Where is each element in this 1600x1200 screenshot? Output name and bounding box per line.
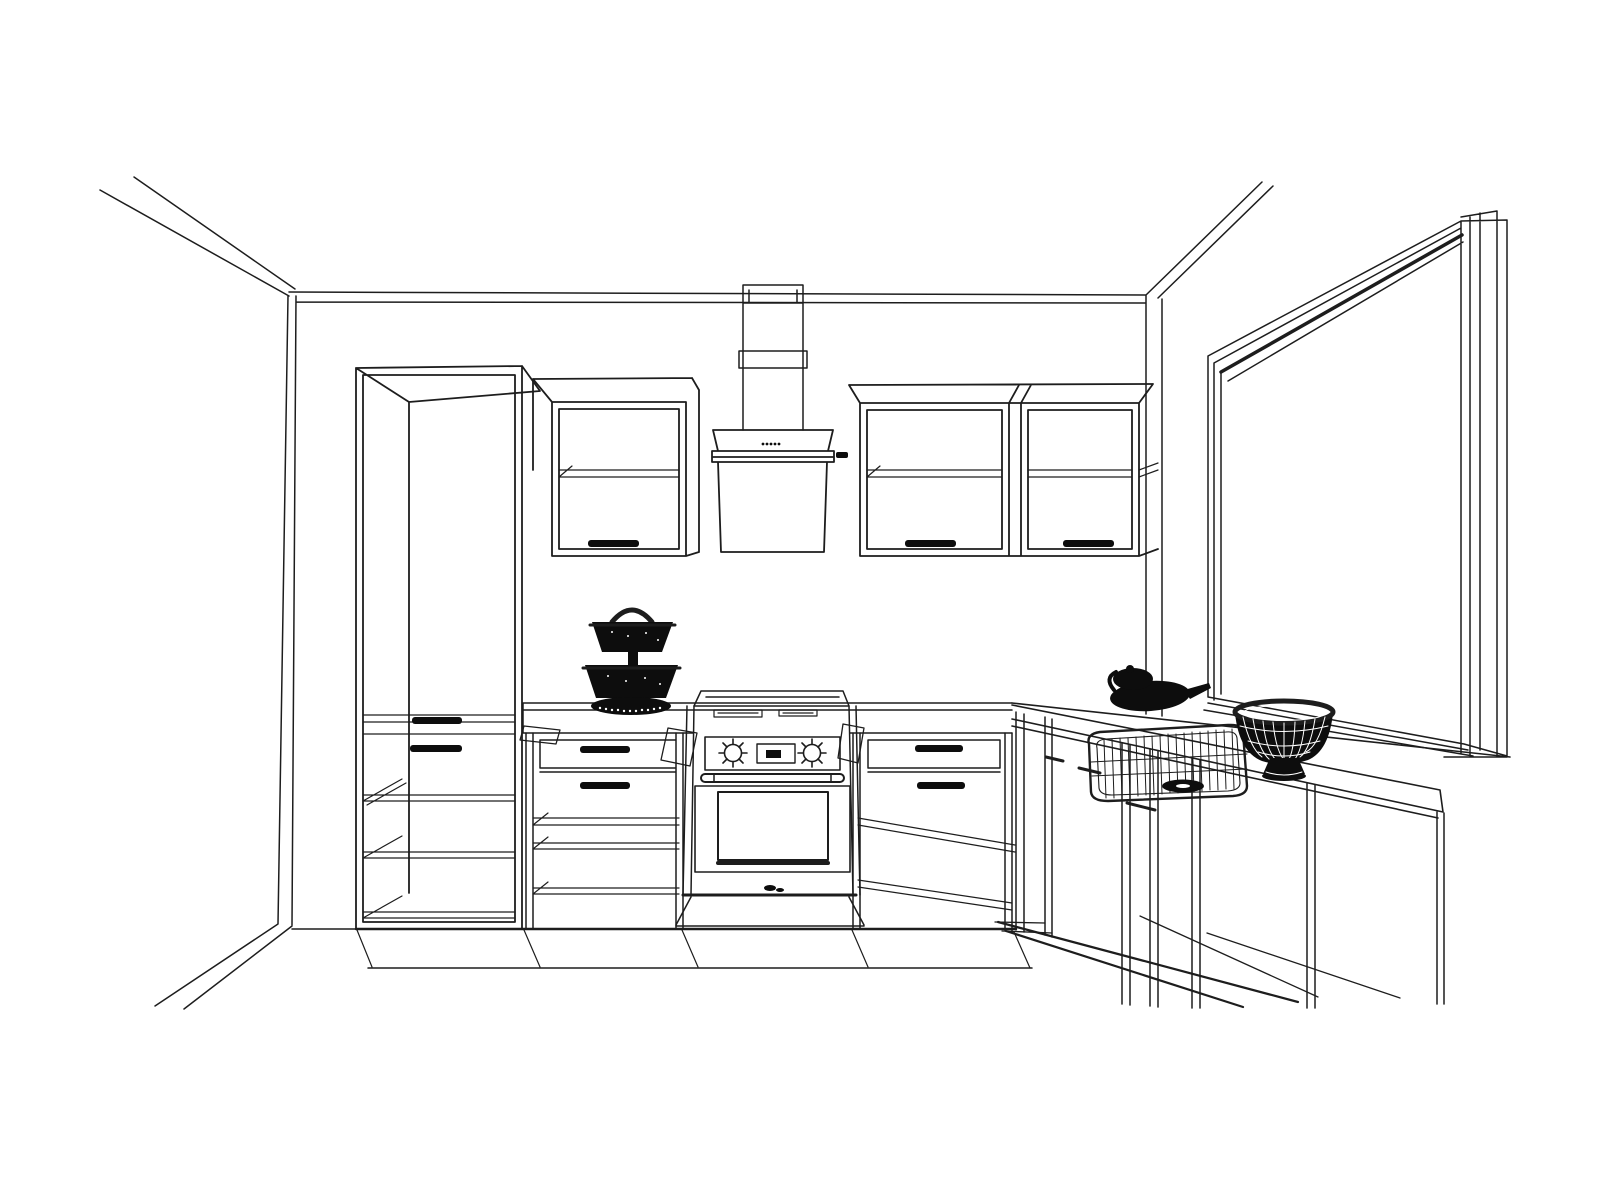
hood-dot-4	[774, 443, 777, 446]
perforation-dot	[641, 709, 643, 711]
wall-cabinet-right-handle-2	[1063, 540, 1114, 547]
base-left-handle-1	[580, 746, 630, 753]
highlight-dot	[627, 635, 629, 637]
perforation-dot	[623, 710, 625, 712]
highlight-dot	[607, 675, 609, 677]
perforation-dot	[599, 707, 601, 709]
perforation-dot	[629, 710, 631, 712]
hood-dot-2	[766, 443, 769, 446]
display-digits	[766, 750, 781, 758]
basket-tier-lower	[585, 665, 678, 698]
highlight-dot	[645, 632, 647, 634]
hood-dot-1	[762, 443, 765, 446]
base-right-handle-1	[915, 745, 963, 752]
tall-cabinet-drawer-handle-2	[410, 745, 462, 752]
hood-dot-5	[778, 443, 781, 446]
highlight-dot	[659, 683, 661, 685]
hood-dot-3	[770, 443, 773, 446]
perforation-dot	[659, 707, 661, 709]
paper-background	[0, 0, 1600, 1200]
logo-blob-2	[776, 888, 784, 892]
perforation-dot	[611, 709, 613, 711]
logo-blob-1	[764, 885, 776, 891]
highlight-dot	[644, 677, 646, 679]
kitchen-wireframe-svg	[0, 0, 1600, 1200]
perforation-dot	[605, 708, 607, 710]
tall-cabinet-drawer-handle-1	[412, 717, 462, 724]
perforation-dot	[647, 709, 649, 711]
wall-cabinet-left-handle	[588, 540, 639, 547]
perforation-dot	[635, 710, 637, 712]
sink-drain-hole	[1176, 784, 1190, 788]
highlight-dot	[625, 680, 627, 682]
perforation-dot	[617, 709, 619, 711]
hood-side-switch	[836, 452, 848, 458]
base-left-handle-2	[580, 782, 630, 789]
wall-cabinet-right-handle-1	[905, 540, 956, 547]
perforation-dot	[653, 708, 655, 710]
base-right-handle-2	[917, 782, 965, 789]
highlight-dot	[611, 631, 613, 633]
wireframe-sketch-canvas	[0, 0, 1600, 1200]
highlight-dot	[657, 639, 659, 641]
kettle-lid-knob	[1126, 665, 1134, 673]
basket-base	[591, 697, 671, 715]
